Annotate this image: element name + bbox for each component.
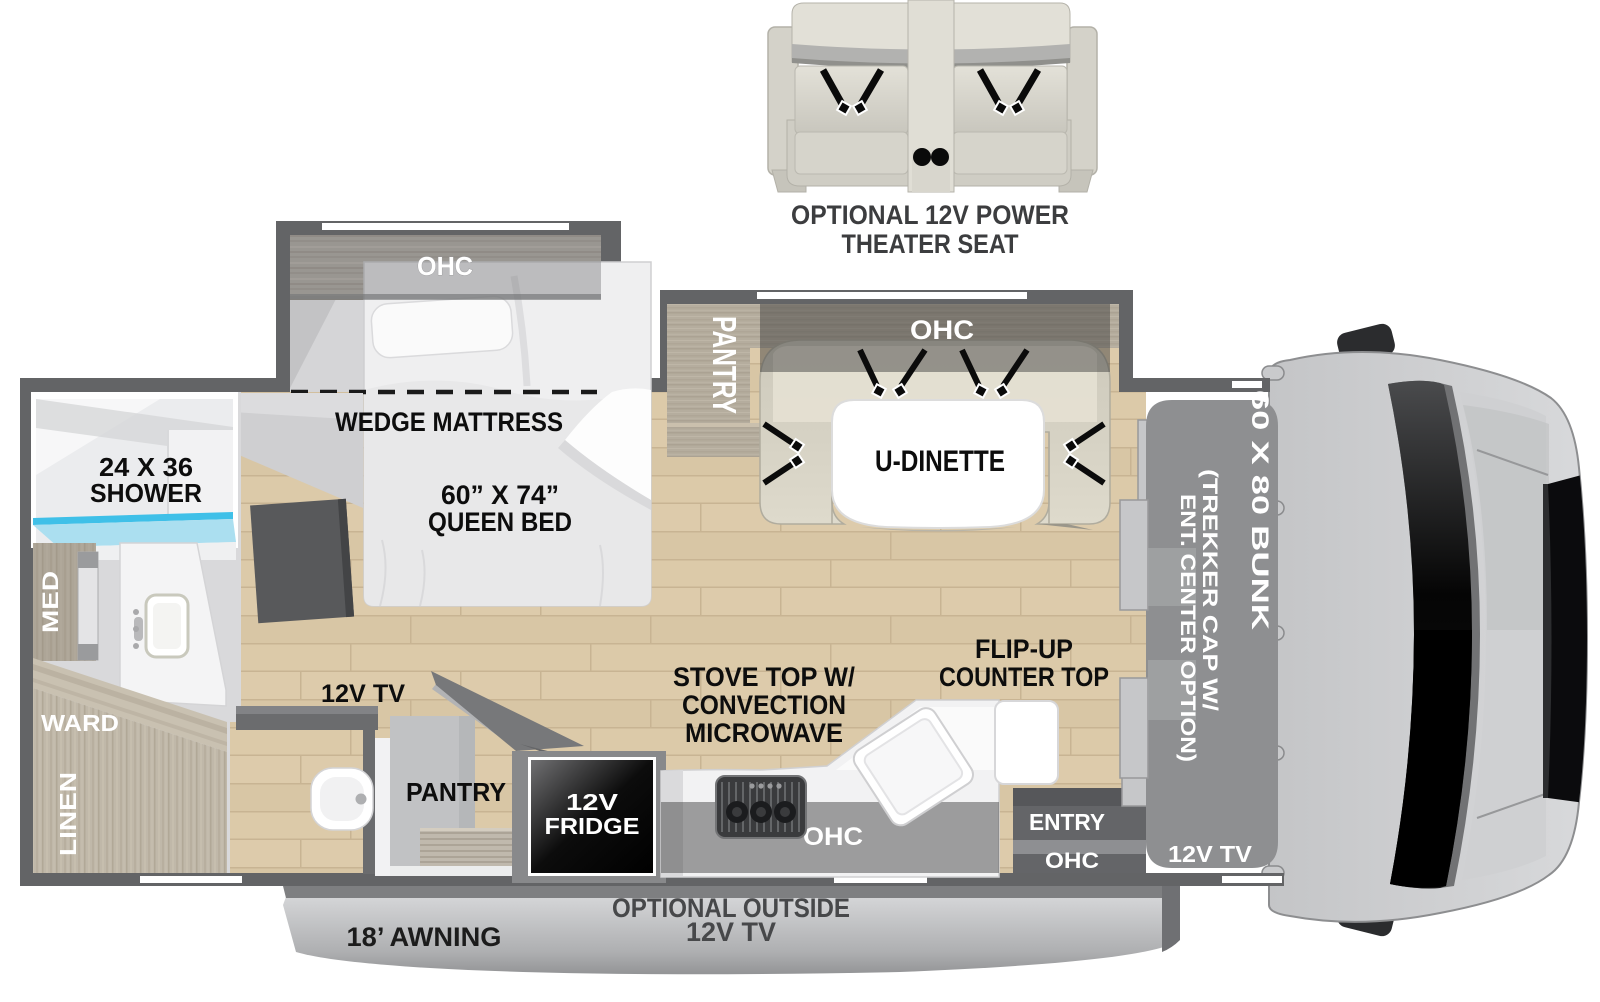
svg-text:ENT. CENTER OPTION): ENT. CENTER OPTION) [1176, 494, 1199, 762]
svg-text:FLIP-UP: FLIP-UP [975, 634, 1073, 664]
svg-text:60” X 74”: 60” X 74” [441, 480, 559, 510]
svg-text:STOVE TOP W/: STOVE TOP W/ [673, 662, 855, 692]
svg-text:ENTRY: ENTRY [1029, 809, 1105, 835]
svg-text:COUNTER TOP: COUNTER TOP [939, 662, 1109, 692]
svg-text:U-DINETTE: U-DINETTE [875, 445, 1005, 478]
svg-text:QUEEN BED: QUEEN BED [428, 507, 572, 537]
svg-text:18’ AWNING: 18’ AWNING [347, 922, 502, 952]
svg-text:12V TV: 12V TV [1168, 841, 1253, 867]
svg-text:WEDGE MATTRESS: WEDGE MATTRESS [335, 407, 563, 437]
svg-text:12V: 12V [566, 789, 619, 815]
svg-text:60 X 80 BUNK: 60 X 80 BUNK [1246, 390, 1273, 631]
svg-text:MICROWAVE: MICROWAVE [685, 718, 843, 748]
svg-text:12V TV: 12V TV [321, 680, 405, 708]
svg-text:12V TV: 12V TV [686, 917, 776, 947]
svg-text:THEATER SEAT: THEATER SEAT [842, 229, 1019, 259]
svg-text:(TREKKER CAP W/: (TREKKER CAP W/ [1198, 469, 1221, 711]
svg-text:OHC: OHC [1045, 848, 1099, 873]
svg-text:LINEN: LINEN [55, 772, 81, 856]
svg-text:CONVECTION: CONVECTION [682, 690, 846, 720]
svg-text:SHOWER: SHOWER [90, 478, 202, 508]
svg-text:WARD: WARD [41, 710, 119, 736]
svg-text:OHC: OHC [910, 315, 974, 345]
svg-text:OPTIONAL 12V POWER: OPTIONAL 12V POWER [791, 200, 1069, 230]
svg-text:PANTRY: PANTRY [406, 777, 506, 807]
svg-text:OHC: OHC [417, 251, 473, 281]
svg-text:OHC: OHC [803, 823, 863, 851]
svg-text:PANTRY: PANTRY [706, 316, 743, 414]
svg-text:MED: MED [38, 571, 63, 633]
svg-text:FRIDGE: FRIDGE [545, 813, 640, 839]
